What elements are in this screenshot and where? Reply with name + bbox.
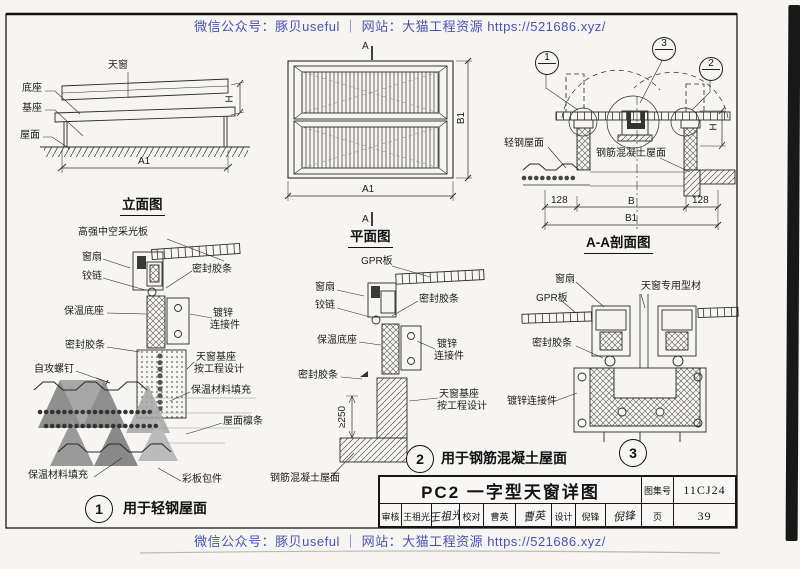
dim-a1-plan: A1 [362, 184, 374, 196]
label-d2-sash: 窗扇 [315, 282, 335, 294]
page-number: 39 [674, 504, 735, 528]
label-roof: 屋面 [20, 130, 40, 142]
label-d2-skylight-base-2: 按工程设计 [437, 401, 487, 413]
callout-1-number: 1 [536, 52, 558, 63]
label-special-profile: 天窗专用型材 [641, 281, 701, 293]
label-d1-seal-top: 密封胶条 [192, 264, 232, 276]
label-glazing-panel: 高强中空采光板 [78, 227, 148, 239]
dim-128-right: 128 [692, 195, 709, 207]
label-color-plate: 彩板包件 [182, 474, 222, 486]
label-d1-hinge: 铰链 [82, 271, 102, 283]
label-base: 底座 [22, 83, 42, 95]
section-callout-1: 1 [535, 51, 559, 75]
callout-2-number: 2 [700, 58, 722, 69]
watermark-bottom: 微信公众号：豚贝useful ｜ 网站：大猫工程资源 https://52168… [0, 531, 800, 550]
label-d2-seal-bottom: 密封胶条 [298, 370, 338, 382]
label-d2-galv-connector-2: 连接件 [434, 351, 464, 363]
detail2-linework [329, 266, 484, 479]
label-self-tapping-screw: 自攻螺钉 [34, 364, 74, 376]
label-roof-purlin: 屋面檩条 [223, 416, 263, 428]
detail3-linework [522, 282, 738, 444]
label-d2-insulated-base: 保温底座 [317, 335, 357, 347]
section-callout-2: 2 [699, 57, 723, 81]
label-light-steel-roof: 轻钢屋面 [504, 138, 544, 150]
label-skylight: 天窗 [108, 60, 128, 72]
label-insulation-fill-right: 保温材料填充 [191, 385, 251, 397]
label-d1-seal-bottom: 密封胶条 [65, 340, 105, 352]
atlas-number: 11CJ24 [674, 477, 735, 504]
dim-250: ≥250 [337, 406, 349, 428]
detail3-number: 3 [619, 439, 647, 467]
reviewer-label: 审核 [380, 504, 402, 528]
sheet-title: PC2 一字型天窗详图 [380, 477, 642, 504]
title-block: PC2 一字型天窗详图 图集号 11CJ24 审核 王祖光 王祖光 校对 曹英 … [378, 475, 737, 528]
label-d1-skylight-base-2: 按工程设计 [194, 364, 244, 376]
label-d1-galv-connector-2: 连接件 [210, 320, 240, 332]
detail1-caption: 用于轻钢屋面 [123, 500, 207, 517]
reviewer-signature: 王祖光 [432, 504, 460, 528]
watermark-top: 微信公众号：豚贝useful ｜ 网站：大猫工程资源 https://52168… [0, 16, 800, 35]
label-d1-skylight-base-1: 天窗基座 [196, 352, 236, 364]
label-pedestal: 基座 [22, 103, 42, 115]
drawing-sheet: 微信公众号：豚贝useful ｜ 网站：大猫工程资源 https://52168… [0, 0, 800, 569]
detail2-number: 2 [406, 445, 434, 473]
callout-3-number: 3 [653, 38, 675, 49]
label-d1-galv-connector-1: 镀锌 [213, 308, 233, 320]
designer-label: 设计 [552, 504, 576, 528]
label-d2-gpr: GPR板 [361, 256, 393, 268]
detail2-caption: 用于钢筋混凝土屋面 [441, 450, 567, 467]
plan-linework [285, 46, 472, 226]
dim-b1-section: B1 [625, 213, 637, 225]
dim-a1-elevation: A1 [138, 156, 150, 168]
page-label: 页 [642, 504, 674, 528]
label-d3-sash: 窗扇 [555, 274, 575, 286]
section-mark-bottom: A [362, 214, 369, 226]
designer-name: 倪锋 [576, 504, 606, 528]
label-d3-gpr: GPR板 [536, 293, 568, 305]
checker-label: 校对 [460, 504, 484, 528]
dim-h-elevation: H [225, 95, 237, 102]
elevation-title: 立面图 [120, 197, 165, 216]
section-callout-3: 3 [652, 37, 676, 61]
dim-128-left: 128 [551, 195, 568, 207]
label-d2-concrete-roof: 钢筋混凝土屋面 [270, 473, 340, 485]
label-d3-galv-connector: 镀锌连接件 [507, 396, 557, 408]
scan-edge-shadow [786, 5, 800, 541]
reviewer-signature-text: 王祖光 [432, 507, 460, 526]
label-insulation-fill-left: 保温材料填充 [28, 470, 88, 482]
dim-b: B [628, 196, 635, 208]
label-d1-sash: 窗扇 [82, 252, 102, 264]
reviewer-name: 王祖光 [402, 504, 432, 528]
designer-signature-text: 倪锋 [612, 507, 635, 525]
checker-signature: 曹英 [516, 504, 552, 528]
dim-b1-plan: B1 [456, 112, 468, 124]
label-d2-hinge: 铰链 [315, 300, 335, 312]
label-d1-insulated-base: 保温底座 [64, 306, 104, 318]
label-d3-seal: 密封胶条 [532, 338, 572, 350]
label-d2-galv-connector-1: 镀锌 [437, 339, 457, 351]
plan-title: 平面图 [348, 229, 393, 248]
label-concrete-roof-section: 钢筋混凝土屋面 [596, 148, 666, 160]
dim-h-section: H [709, 123, 721, 130]
section-title: A-A剖面图 [584, 235, 653, 254]
designer-signature: 倪锋 [606, 504, 642, 528]
label-d2-skylight-base-1: 天窗基座 [439, 389, 479, 401]
label-d2-seal-top: 密封胶条 [419, 294, 459, 306]
checker-signature-text: 曹英 [522, 507, 545, 525]
atlas-number-label: 图集号 [642, 477, 674, 504]
detail1-number: 1 [85, 495, 113, 523]
section-mark-top: A [362, 41, 369, 53]
checker-name: 曹英 [484, 504, 516, 528]
